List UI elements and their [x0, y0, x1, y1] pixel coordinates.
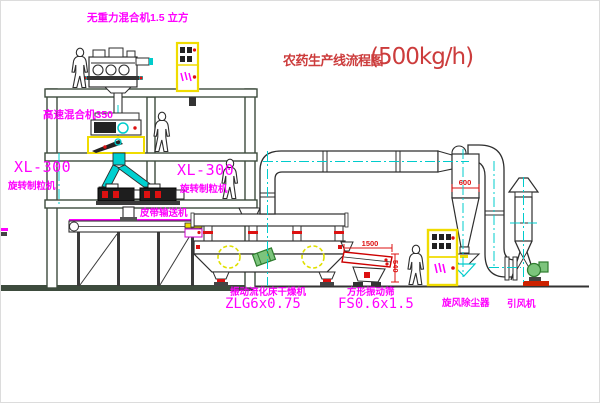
label-dryer-model: ZLG6x0.75 [225, 297, 301, 311]
label-granulator-name-right: 旋转制粒机 [180, 185, 228, 195]
gravity-mixer [83, 48, 153, 115]
label-high-speed-mixer: 高速混合机350 [43, 110, 113, 121]
worker-ground [408, 245, 424, 284]
fluid-bed-dryer [191, 213, 348, 286]
exhaust-duct [260, 151, 438, 214]
dim-sieve-540: 540 [392, 260, 400, 273]
granulator-discharge-pipe [120, 207, 137, 221]
label-fan: 引风机 [507, 300, 536, 310]
belt-conveyor [69, 219, 202, 286]
label-granulator-model-right: XL-300 [177, 163, 234, 178]
worker-floor2 [154, 112, 170, 151]
label-sieve-model: FS0.6x1.5 [338, 297, 414, 311]
control-cabinet-bottom [428, 230, 457, 285]
label-cyclone: 旋风除尘器 [442, 299, 490, 309]
label-gravity-mixer: 无重力混合机1.5 立方 [87, 13, 189, 24]
label-belt-conveyor: 皮带输送机 [140, 209, 188, 219]
label-granulator-model-left: XL-300 [14, 160, 71, 175]
dim-sieve-1500: 1500 [352, 240, 388, 248]
induced-draft-fan [523, 262, 549, 286]
dim-cyclone-600: 600 [451, 179, 479, 187]
page-title: 农药生产线流程图 [283, 54, 383, 67]
left-edge-fitting [1, 228, 8, 236]
label-granulator-name-left: 旋转制粒机 [8, 182, 56, 192]
flow-diagram-canvas: 农药生产线流程图 (500kg/h) 无重力混合机1.5 立方 高速混合机350… [0, 0, 600, 403]
page-title-capacity: (500kg/h) [370, 46, 473, 69]
worker-roof [72, 48, 88, 87]
